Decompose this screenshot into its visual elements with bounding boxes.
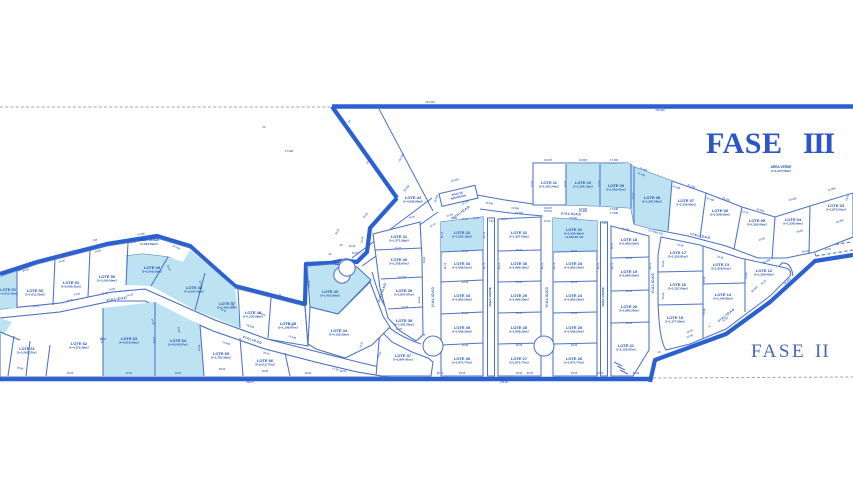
svg-text:30.00: 30.00: [571, 311, 578, 315]
svg-text:S=1,875.77m2: S=1,875.77m2: [509, 361, 529, 365]
svg-text:23.23: 23.23: [349, 244, 356, 248]
svg-text:+2,242.92 m2: +2,242.92 m2: [565, 235, 584, 239]
svg-text:S=1,358.43m2: S=1,358.43m2: [754, 273, 774, 277]
svg-text:S=1,880.25m2: S=1,880.25m2: [619, 309, 639, 313]
svg-text:48.00: 48.00: [175, 371, 182, 375]
svg-text:7.30: 7.30: [601, 221, 607, 225]
svg-text:158.262: 158.262: [655, 108, 665, 112]
svg-text:30.00: 30.00: [462, 217, 469, 221]
svg-text:37.30: 37.30: [497, 263, 501, 270]
svg-text:30.00: 30.00: [571, 249, 578, 253]
svg-text:90.02: 90.02: [152, 336, 156, 343]
svg-text:30.298: 30.298: [515, 211, 523, 215]
svg-text:23 23: 23 23: [352, 251, 359, 255]
svg-text:S=3,013.77m2: S=3,013.77m2: [255, 363, 275, 367]
svg-text:37.30: 37.30: [443, 263, 447, 270]
svg-text:30.00: 30.00: [571, 343, 578, 347]
svg-text:S=1,011.20m2: S=1,011.20m2: [25, 293, 45, 297]
svg-text:17.938: 17.938: [610, 211, 618, 215]
svg-text:S=1,271.99m2: S=1,271.99m2: [389, 239, 409, 243]
svg-text:37.30: 37.30: [440, 232, 444, 239]
svg-text:S=1,880.25m2: S=1,880.25m2: [509, 298, 529, 302]
svg-text:S=1,090.21m2: S=1,090.21m2: [61, 285, 81, 289]
svg-text:S=4,838.96m2: S=4,838.96m2: [403, 200, 423, 204]
svg-text:S=1,883.03m2: S=1,883.03m2: [619, 242, 639, 246]
svg-text:S=2,864.41m2: S=2,864.41m2: [393, 358, 413, 362]
svg-text:S=1,808.25m2: S=1,808.25m2: [509, 330, 529, 334]
svg-text:S=1,258.97m2: S=1,258.97m2: [389, 262, 409, 266]
svg-text:S=4,218.05m2: S=4,218.05m2: [119, 341, 139, 345]
svg-text:32.006: 32.006: [579, 158, 587, 162]
svg-text:12.00: 12.00: [129, 240, 136, 245]
svg-text:30.50: 30.50: [661, 292, 665, 299]
svg-text:S=1,339.95m2: S=1,339.95m2: [676, 203, 696, 207]
svg-text:30.00: 30.00: [459, 371, 466, 375]
svg-text:40.007: 40.007: [544, 209, 552, 213]
svg-text:III: III: [803, 127, 834, 160]
svg-text:26.00: 26.00: [219, 367, 226, 371]
svg-text:30.00: 30.00: [516, 280, 523, 284]
svg-text:17.938: 17.938: [610, 207, 618, 211]
svg-text:30.00: 30.00: [305, 371, 312, 375]
svg-text:S=1,308.93m2: S=1,308.93m2: [710, 213, 730, 217]
svg-text:30.00: 30.00: [516, 248, 523, 252]
svg-text:44.60: 44.60: [422, 256, 426, 263]
svg-text:S=1,377.89m2: S=1,377.89m2: [665, 320, 685, 324]
svg-text:S=1,336.60m2: S=1,336.60m2: [783, 222, 803, 226]
svg-text:S=1,875.77m2: S=1,875.77m2: [564, 361, 584, 365]
svg-text:S=1,198.67m2: S=1,198.67m2: [278, 326, 298, 330]
svg-text:S=2,139.97m2: S=2,139.97m2: [616, 348, 636, 352]
svg-text:37.30: 37.30: [610, 263, 614, 270]
svg-text:30.50: 30.50: [702, 276, 707, 283]
svg-text:S=1,453.95m2: S=1,453.95m2: [320, 294, 340, 298]
svg-text:FASE: FASE: [706, 127, 782, 160]
svg-text:S=4,048.07m2: S=4,048.07m2: [168, 343, 188, 347]
svg-text:42.08: 42.08: [197, 344, 202, 351]
svg-text:90.00: 90.00: [633, 371, 640, 375]
svg-text:S=4,139.23m2: S=4,139.23m2: [329, 333, 349, 337]
svg-text:44.60: 44.60: [417, 296, 421, 303]
svg-text:S=1,880.25m2: S=1,880.25m2: [509, 266, 529, 270]
svg-text:30.00: 30.00: [516, 371, 523, 375]
svg-text:44.60: 44.60: [395, 246, 402, 250]
svg-text:25.00: 25.00: [307, 280, 312, 287]
svg-text:S=1,262.13m2: S=1,262.13m2: [452, 235, 472, 239]
svg-text:S=1,357.80m2: S=1,357.80m2: [668, 287, 688, 291]
svg-text:AREA VERDE: AREA VERDE: [488, 287, 492, 307]
svg-text:90.02: 90.02: [100, 337, 107, 341]
svg-text:30.50: 30.50: [661, 260, 665, 267]
svg-text:37.30: 37.30: [482, 263, 486, 270]
svg-text:S=1,065.17m2: S=1,065.17m2: [17, 351, 37, 355]
svg-text:S=1,305.60m2: S=1,305.60m2: [747, 223, 767, 227]
svg-text:7.30: 7.30: [488, 219, 494, 223]
svg-text:12.00: 12.00: [544, 219, 551, 223]
svg-text:S=1,808.25m2: S=1,808.25m2: [452, 330, 472, 334]
svg-text:90.00: 90.00: [340, 369, 347, 373]
svg-text:S=1,880.25m2: S=1,880.25m2: [452, 298, 472, 302]
svg-text:S=1,355.81m2: S=1,355.81m2: [668, 255, 688, 259]
svg-text:S=1,011.20m2: S=1,011.20m2: [0, 292, 18, 296]
svg-text:37.30: 37.30: [552, 263, 556, 270]
svg-text:13.06: 13.06: [501, 217, 508, 221]
svg-text:104.364: 104.364: [425, 100, 435, 104]
svg-text:S=1,807.97m2: S=1,807.97m2: [394, 293, 414, 297]
svg-text:30.00: 30.00: [516, 343, 523, 347]
svg-text:VIALIDAD: VIALIDAD: [651, 273, 655, 294]
svg-text:52.00: 52.00: [126, 371, 133, 375]
svg-text:36.006: 36.006: [398, 275, 407, 279]
svg-text:S=2,007.00m2: S=2,007.00m2: [184, 290, 204, 294]
svg-text:S=1,808.25m2: S=1,808.25m2: [564, 330, 584, 334]
svg-text:S=1,267.56m2: S=1,267.56m2: [642, 200, 662, 204]
svg-text:30.50: 30.50: [631, 192, 636, 199]
svg-text:30.00: 30.00: [626, 256, 633, 260]
svg-text:37.30: 37.30: [540, 263, 544, 270]
svg-text:30.00: 30.00: [462, 311, 469, 315]
svg-text:S=1,265.41m2: S=1,265.41m2: [606, 188, 626, 192]
svg-text:30.00: 30.00: [571, 280, 578, 284]
svg-text:VIALIDAD: VIALIDAD: [545, 287, 549, 308]
svg-text:II: II: [815, 341, 830, 362]
svg-text:40.007: 40.007: [544, 158, 552, 162]
svg-text:33.06: 33.06: [473, 216, 480, 220]
svg-text:31.996: 31.996: [579, 209, 587, 213]
svg-text:30.00: 30.00: [462, 280, 469, 284]
svg-text:30.00: 30.00: [516, 311, 523, 315]
svg-text:S=1,027.55m2: S=1,027.55m2: [771, 169, 791, 173]
svg-text:10.00: 10.00: [597, 180, 601, 187]
svg-text:90.00: 90.00: [527, 371, 534, 375]
svg-text:10.00: 10.00: [530, 180, 534, 187]
svg-text:349.97: 349.97: [246, 380, 254, 384]
svg-text:S=1,880.25m2: S=1,880.25m2: [619, 274, 639, 278]
svg-text:S=1,263.22m2: S=1,263.22m2: [394, 323, 414, 327]
svg-text:VIALIDAD: VIALIDAD: [431, 287, 435, 308]
svg-text:30.00: 30.00: [462, 343, 469, 347]
svg-text:S=1,781.96m2: S=1,781.96m2: [211, 356, 231, 360]
svg-text:S=1,880.25m2: S=1,880.25m2: [564, 298, 584, 302]
svg-text:S=2,009.20m2: S=2,009.20m2: [142, 270, 162, 274]
svg-text:37.30: 37.30: [482, 232, 486, 239]
svg-text:S=1,267.03m2: S=1,267.03m2: [509, 235, 529, 239]
svg-text:AREA VERDE: AREA VERDE: [601, 287, 605, 307]
svg-text:10.00: 10.00: [563, 180, 567, 187]
svg-text:37.30: 37.30: [596, 263, 600, 270]
svg-text:90.00: 90.00: [597, 371, 604, 375]
svg-text:30.00: 30.00: [67, 371, 74, 375]
svg-text:S=1,358.61m2: S=1,358.61m2: [711, 267, 731, 271]
svg-text:17.296: 17.296: [610, 158, 618, 162]
svg-text:30.50: 30.50: [610, 243, 615, 250]
svg-text:S=1,265.24m2: S=1,265.24m2: [539, 185, 559, 189]
svg-text:30.00: 30.00: [462, 249, 469, 253]
svg-text:S=1,349.82m2: S=1,349.82m2: [713, 297, 733, 301]
svg-text:S=1,875.04m2: S=1,875.04m2: [826, 208, 846, 212]
svg-text:30.00: 30.00: [402, 305, 409, 309]
svg-text:26.00: 26.00: [262, 369, 269, 373]
svg-text:S=1,265.13m2: S=1,265.13m2: [573, 185, 593, 189]
svg-text:FASE: FASE: [751, 341, 806, 362]
svg-text:30.00: 30.00: [626, 321, 633, 325]
svg-text:32.006: 32.006: [569, 216, 577, 220]
svg-text:37.30: 37.30: [648, 263, 652, 270]
svg-text:30.00: 30.00: [571, 371, 578, 375]
svg-text:17.298: 17.298: [285, 149, 293, 153]
svg-text:S=1,880.25m2: S=1,880.25m2: [564, 266, 584, 270]
svg-text:S=1,875.77m2: S=1,875.77m2: [452, 361, 472, 365]
svg-text:S=1,090.09m2: S=1,090.09m2: [97, 279, 117, 283]
svg-text:246.94: 246.94: [500, 380, 508, 384]
svg-text:30.00: 30.00: [626, 289, 633, 293]
svg-text:S=610.69m2: S=610.69m2: [140, 242, 158, 246]
svg-text:S=1,808.01m2: S=1,808.01m2: [452, 266, 472, 270]
svg-text:30.00: 30.00: [396, 327, 403, 331]
svg-text:90.00: 90.00: [437, 371, 444, 375]
svg-text:S=4,379.30m2: S=4,379.30m2: [69, 346, 89, 350]
